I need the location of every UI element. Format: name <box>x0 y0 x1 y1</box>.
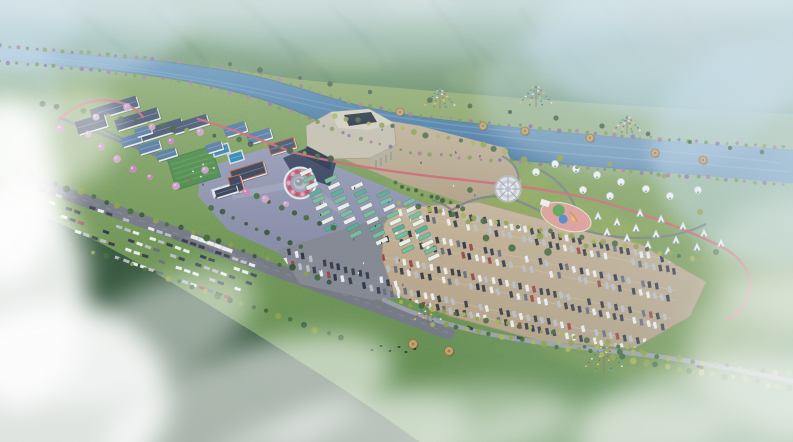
aerial-resort-rendering <box>0 0 793 442</box>
rendering-canvas <box>0 0 793 442</box>
